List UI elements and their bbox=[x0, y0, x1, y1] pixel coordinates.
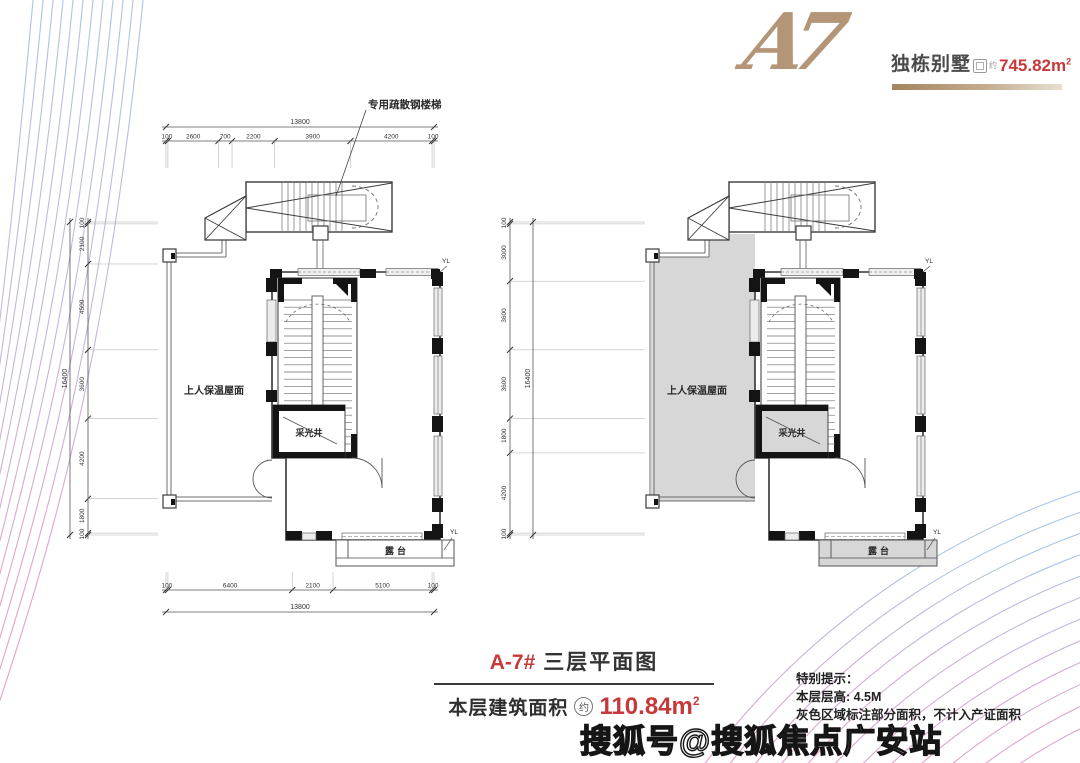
dim-label: 2200 bbox=[246, 134, 261, 141]
plan-rect bbox=[273, 452, 345, 458]
plan-rect bbox=[753, 269, 765, 278]
dim-label: 4200 bbox=[79, 451, 86, 466]
villa-type-label: 独栋别墅 bbox=[891, 49, 971, 76]
plan-rect bbox=[432, 338, 443, 354]
dim-label: 2600 bbox=[186, 134, 201, 141]
dim-label: 2100 bbox=[305, 583, 320, 590]
plan-rect bbox=[316, 531, 332, 540]
dim-label: 100 bbox=[501, 528, 508, 539]
dim-label: 4200 bbox=[384, 134, 399, 141]
dim-total: 13800 bbox=[290, 119, 310, 126]
watermark: 搜狐号@搜狐焦点广安站 bbox=[580, 716, 942, 762]
plan-rect bbox=[651, 257, 755, 501]
dim-label: 3600 bbox=[501, 377, 508, 392]
plan-rect bbox=[749, 278, 760, 292]
floorplan-sheet: 采光井露台YLYL上人保温屋面采光井露台YLYL上人保温屋面1380010026… bbox=[0, 0, 1080, 763]
dim-total: 16400 bbox=[62, 369, 69, 389]
plan-rect bbox=[432, 416, 443, 432]
floor-area-icon-inner bbox=[976, 62, 984, 70]
dim-label: 2100 bbox=[79, 236, 86, 251]
approx-circle: 约 bbox=[574, 697, 593, 716]
terrace-label: 露台 bbox=[868, 545, 892, 556]
yl-mark: YL bbox=[442, 258, 450, 265]
roof-label: 上人保温屋面 bbox=[184, 384, 244, 397]
plan-rect bbox=[834, 278, 840, 302]
total-area-number: 745.82 bbox=[999, 56, 1051, 75]
dim-label: 100 bbox=[162, 583, 173, 590]
dim-label: 1800 bbox=[501, 428, 508, 443]
plan-rect bbox=[749, 342, 760, 356]
plan-rect bbox=[915, 498, 926, 512]
escape-stair-label: 专用疏散钢楼梯 bbox=[368, 98, 442, 111]
dim-total: 16400 bbox=[525, 369, 532, 389]
yl-mark: YL bbox=[450, 529, 458, 536]
roof-label: 上人保温屋面 bbox=[667, 384, 727, 397]
plan-line bbox=[923, 266, 930, 272]
plan-rect bbox=[915, 272, 926, 286]
plan-rect bbox=[915, 338, 926, 354]
logo-monogram: A7 bbox=[738, 4, 841, 82]
yl-mark: YL bbox=[925, 258, 933, 265]
plan-rect bbox=[843, 269, 859, 278]
plan-rect bbox=[756, 405, 762, 458]
plan-rect bbox=[313, 226, 328, 240]
plan-rect bbox=[424, 531, 440, 540]
dim-label: 100 bbox=[428, 583, 439, 590]
plan-rect bbox=[266, 278, 277, 292]
plan-rect bbox=[756, 405, 828, 411]
title-divider bbox=[434, 683, 714, 685]
plan-rect bbox=[749, 390, 760, 402]
plan-rect bbox=[302, 533, 316, 540]
plan-rect bbox=[796, 226, 811, 240]
dim-label: 4500 bbox=[79, 299, 86, 314]
plan-rect bbox=[799, 531, 815, 540]
plan-rect bbox=[750, 300, 759, 342]
plan-rect bbox=[654, 499, 658, 505]
plan-rect bbox=[761, 278, 785, 284]
dim-label: 3600 bbox=[501, 308, 508, 323]
dim-label: 3000 bbox=[501, 245, 508, 260]
plan-rect bbox=[278, 278, 302, 284]
plan-rect bbox=[432, 272, 443, 286]
plan-rect bbox=[785, 533, 799, 540]
plan-rect bbox=[907, 531, 923, 540]
gold-underline bbox=[892, 84, 1062, 90]
plan-code: A-7# bbox=[490, 651, 536, 674]
floor-area-value: 110.84m2 bbox=[599, 695, 699, 719]
dim-label: 700 bbox=[220, 134, 231, 141]
plan-rect bbox=[171, 499, 175, 505]
dim-label: 100 bbox=[162, 134, 173, 141]
total-area-unit: m bbox=[1051, 56, 1066, 75]
dim-total: 13800 bbox=[290, 604, 310, 611]
notes-line-1: 本层层高: 4.5M bbox=[796, 689, 1021, 707]
plan-right: 采光井露台YLYL上人保温屋面 bbox=[646, 182, 941, 566]
plan-line bbox=[440, 266, 447, 272]
dim-label: 6400 bbox=[223, 583, 238, 590]
plan-rect bbox=[273, 405, 279, 458]
dim-label: 1800 bbox=[79, 508, 86, 523]
dim-label: 100 bbox=[428, 134, 439, 141]
plan-rect bbox=[267, 300, 276, 342]
total-area-value: 745.82m2 bbox=[999, 57, 1071, 74]
floor-area-icon bbox=[973, 59, 987, 73]
plan-rect bbox=[273, 405, 345, 411]
plan-rect bbox=[266, 342, 277, 356]
plan-left: 采光井露台YLYL上人保温屋面 bbox=[163, 182, 458, 566]
dim-label: 5100 bbox=[375, 583, 390, 590]
approx-label: 约 bbox=[989, 60, 997, 71]
plan-rect bbox=[286, 531, 302, 540]
plan-rect bbox=[266, 390, 277, 402]
notes-heading: 特别提示： bbox=[796, 671, 1021, 689]
plan-title: A-7#三层平面图 bbox=[428, 646, 720, 676]
plan-path bbox=[253, 460, 272, 479]
dim-label: 100 bbox=[79, 217, 86, 228]
plan-rect bbox=[729, 182, 875, 232]
plan-rect bbox=[171, 253, 175, 259]
plan-rect bbox=[270, 269, 282, 278]
plan-rect bbox=[246, 182, 392, 232]
floor-area-label: 本层建筑面积 bbox=[448, 693, 568, 720]
plan-name: 三层平面图 bbox=[543, 651, 658, 674]
dim-label: 100 bbox=[79, 528, 86, 539]
dim-label: 3900 bbox=[305, 134, 320, 141]
plan-rect bbox=[351, 278, 357, 302]
total-area: 约 745.82m2 bbox=[973, 57, 1071, 74]
plan-title-block: A-7#三层平面图 本层建筑面积 约 110.84m2 bbox=[428, 646, 720, 720]
dim-label: 4200 bbox=[501, 485, 508, 500]
light-well-label: 采光井 bbox=[777, 427, 805, 438]
plan-rect bbox=[654, 253, 658, 259]
total-area-sup: 2 bbox=[1066, 56, 1071, 66]
plan-rect bbox=[360, 269, 376, 278]
plan-path bbox=[253, 479, 272, 498]
plan-rect bbox=[915, 416, 926, 432]
dim-label: 100 bbox=[501, 217, 508, 228]
plan-rect bbox=[769, 531, 785, 540]
light-well-label: 采光井 bbox=[294, 427, 322, 438]
floor-area-sup: 2 bbox=[693, 694, 700, 708]
yl-mark: YL bbox=[933, 529, 941, 536]
plan-rect bbox=[756, 452, 828, 458]
dim-label: 3600 bbox=[79, 377, 86, 392]
terrace-label: 露台 bbox=[385, 545, 409, 556]
plan-rect bbox=[432, 498, 443, 512]
